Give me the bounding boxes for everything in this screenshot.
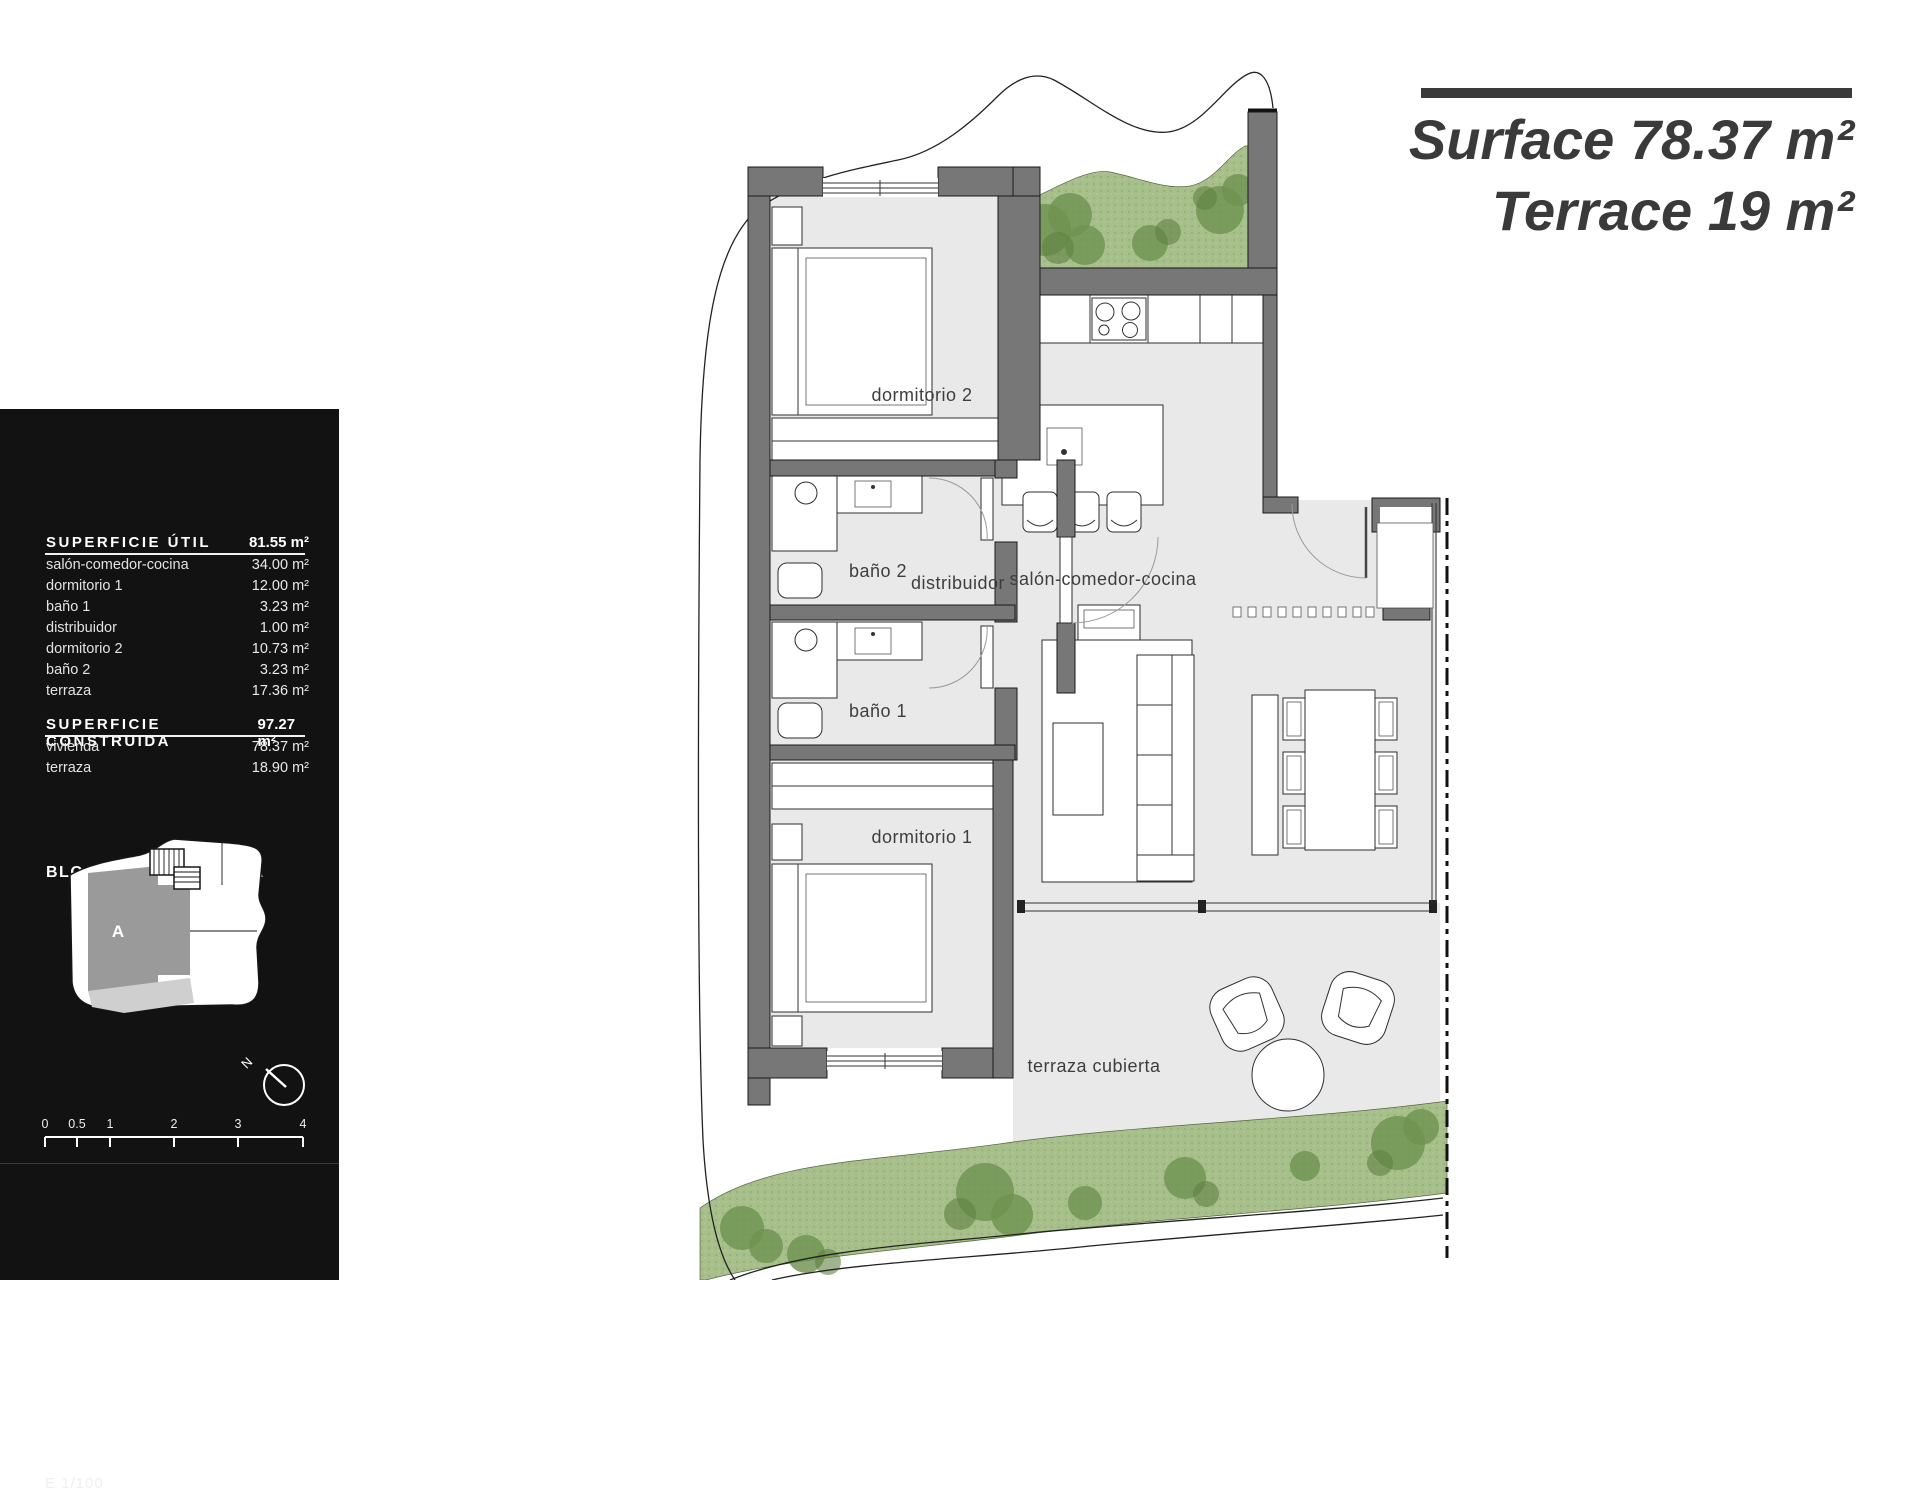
scale-tick: 4 — [300, 1117, 307, 1131]
row-value: 18.90 m² — [252, 760, 309, 776]
area-row: dormitorio 112.00 m² — [46, 578, 309, 599]
label-bano-2: baño 2 — [849, 561, 907, 581]
label-salon: salón-comedor-cocina — [1009, 569, 1197, 589]
area-row: vivienda78.37 m² — [46, 739, 309, 760]
compass-n: N — [238, 1054, 255, 1071]
terrace-value: 19 m² — [1708, 179, 1854, 242]
surface-value: 78.37 m² — [1630, 108, 1854, 171]
area-row: terraza17.36 m² — [46, 683, 309, 704]
constr-rows: vivienda78.37 m² terraza18.90 m² — [46, 739, 309, 781]
label-dormitorio-1: dormitorio 1 — [871, 827, 972, 847]
panel-footer-graphics: N 0 0.5 1 2 3 4 — [0, 1040, 339, 1170]
row-label: terraza — [46, 683, 91, 699]
row-value: 12.00 m² — [252, 578, 309, 594]
scale-bar: 0 0.5 1 2 3 4 — [42, 1117, 307, 1147]
area-row: dormitorio 210.73 m² — [46, 641, 309, 662]
area-row: baño 13.23 m² — [46, 599, 309, 620]
row-value: 3.23 m² — [260, 662, 309, 678]
panel-divider — [0, 1163, 339, 1164]
row-value: 10.73 m² — [252, 641, 309, 657]
row-label: dormitorio 1 — [46, 578, 123, 594]
surface-label: Surface — [1409, 108, 1614, 171]
scale-label: E 1/100 — [45, 1475, 104, 1492]
terrace-label: Terrace — [1492, 179, 1692, 242]
title-rule — [1421, 88, 1852, 98]
compass-icon: N — [238, 1054, 304, 1105]
util-heading: SUPERFICIE ÚTIL — [46, 534, 211, 551]
scale-tick: 1 — [107, 1117, 114, 1131]
kitchen-counter — [1040, 295, 1263, 343]
key-plan-unit-label: A — [112, 922, 124, 941]
util-rule — [45, 553, 305, 555]
surface-title: Surface 78.37 m² Terrace 19 m² — [1409, 104, 1854, 246]
surface-line: Surface 78.37 m² — [1409, 104, 1854, 175]
constr-rule — [45, 735, 305, 737]
scale-tick: 3 — [235, 1117, 242, 1131]
scale-tick: 0 — [42, 1117, 49, 1131]
row-label: terraza — [46, 760, 91, 776]
label-dormitorio-2: dormitorio 2 — [871, 385, 972, 405]
area-row: terraza18.90 m² — [46, 760, 309, 781]
label-terraza: terraza cubierta — [1027, 1056, 1161, 1076]
row-label: distribuidor — [46, 620, 117, 636]
row-value: 78.37 m² — [252, 739, 309, 755]
area-row: baño 23.23 m² — [46, 662, 309, 683]
garden-top — [1019, 146, 1254, 268]
row-value: 1.00 m² — [260, 620, 309, 636]
util-heading-row: SUPERFICIE ÚTIL 81.55 m² — [46, 534, 309, 551]
label-distribuidor: distribuidor — [911, 573, 1005, 593]
util-rows: salón-comedor-cocina34.00 m² dormitorio … — [46, 557, 309, 704]
row-label: baño 2 — [46, 662, 90, 678]
row-label: baño 1 — [46, 599, 90, 615]
key-plan: A — [62, 833, 274, 1025]
row-value: 34.00 m² — [252, 557, 309, 573]
area-row: distribuidor1.00 m² — [46, 620, 309, 641]
area-row: salón-comedor-cocina34.00 m² — [46, 557, 309, 578]
dining-set — [1283, 690, 1397, 850]
row-value: 17.36 m² — [252, 683, 309, 699]
label-bano-1: baño 1 — [849, 701, 907, 721]
terrace-line: Terrace 19 m² — [1409, 175, 1854, 246]
row-label: dormitorio 2 — [46, 641, 123, 657]
row-label: vivienda — [46, 739, 99, 755]
scale-tick: 2 — [171, 1117, 178, 1131]
row-value: 3.23 m² — [260, 599, 309, 615]
round-table — [1252, 1039, 1324, 1111]
util-total: 81.55 m² — [249, 534, 309, 551]
row-label: salón-comedor-cocina — [46, 557, 189, 573]
scale-tick: 0.5 — [68, 1117, 85, 1131]
info-panel: BLOQUE 1 PLANTA BAJA SUPERFICIE ÚTIL 81.… — [0, 409, 339, 1280]
